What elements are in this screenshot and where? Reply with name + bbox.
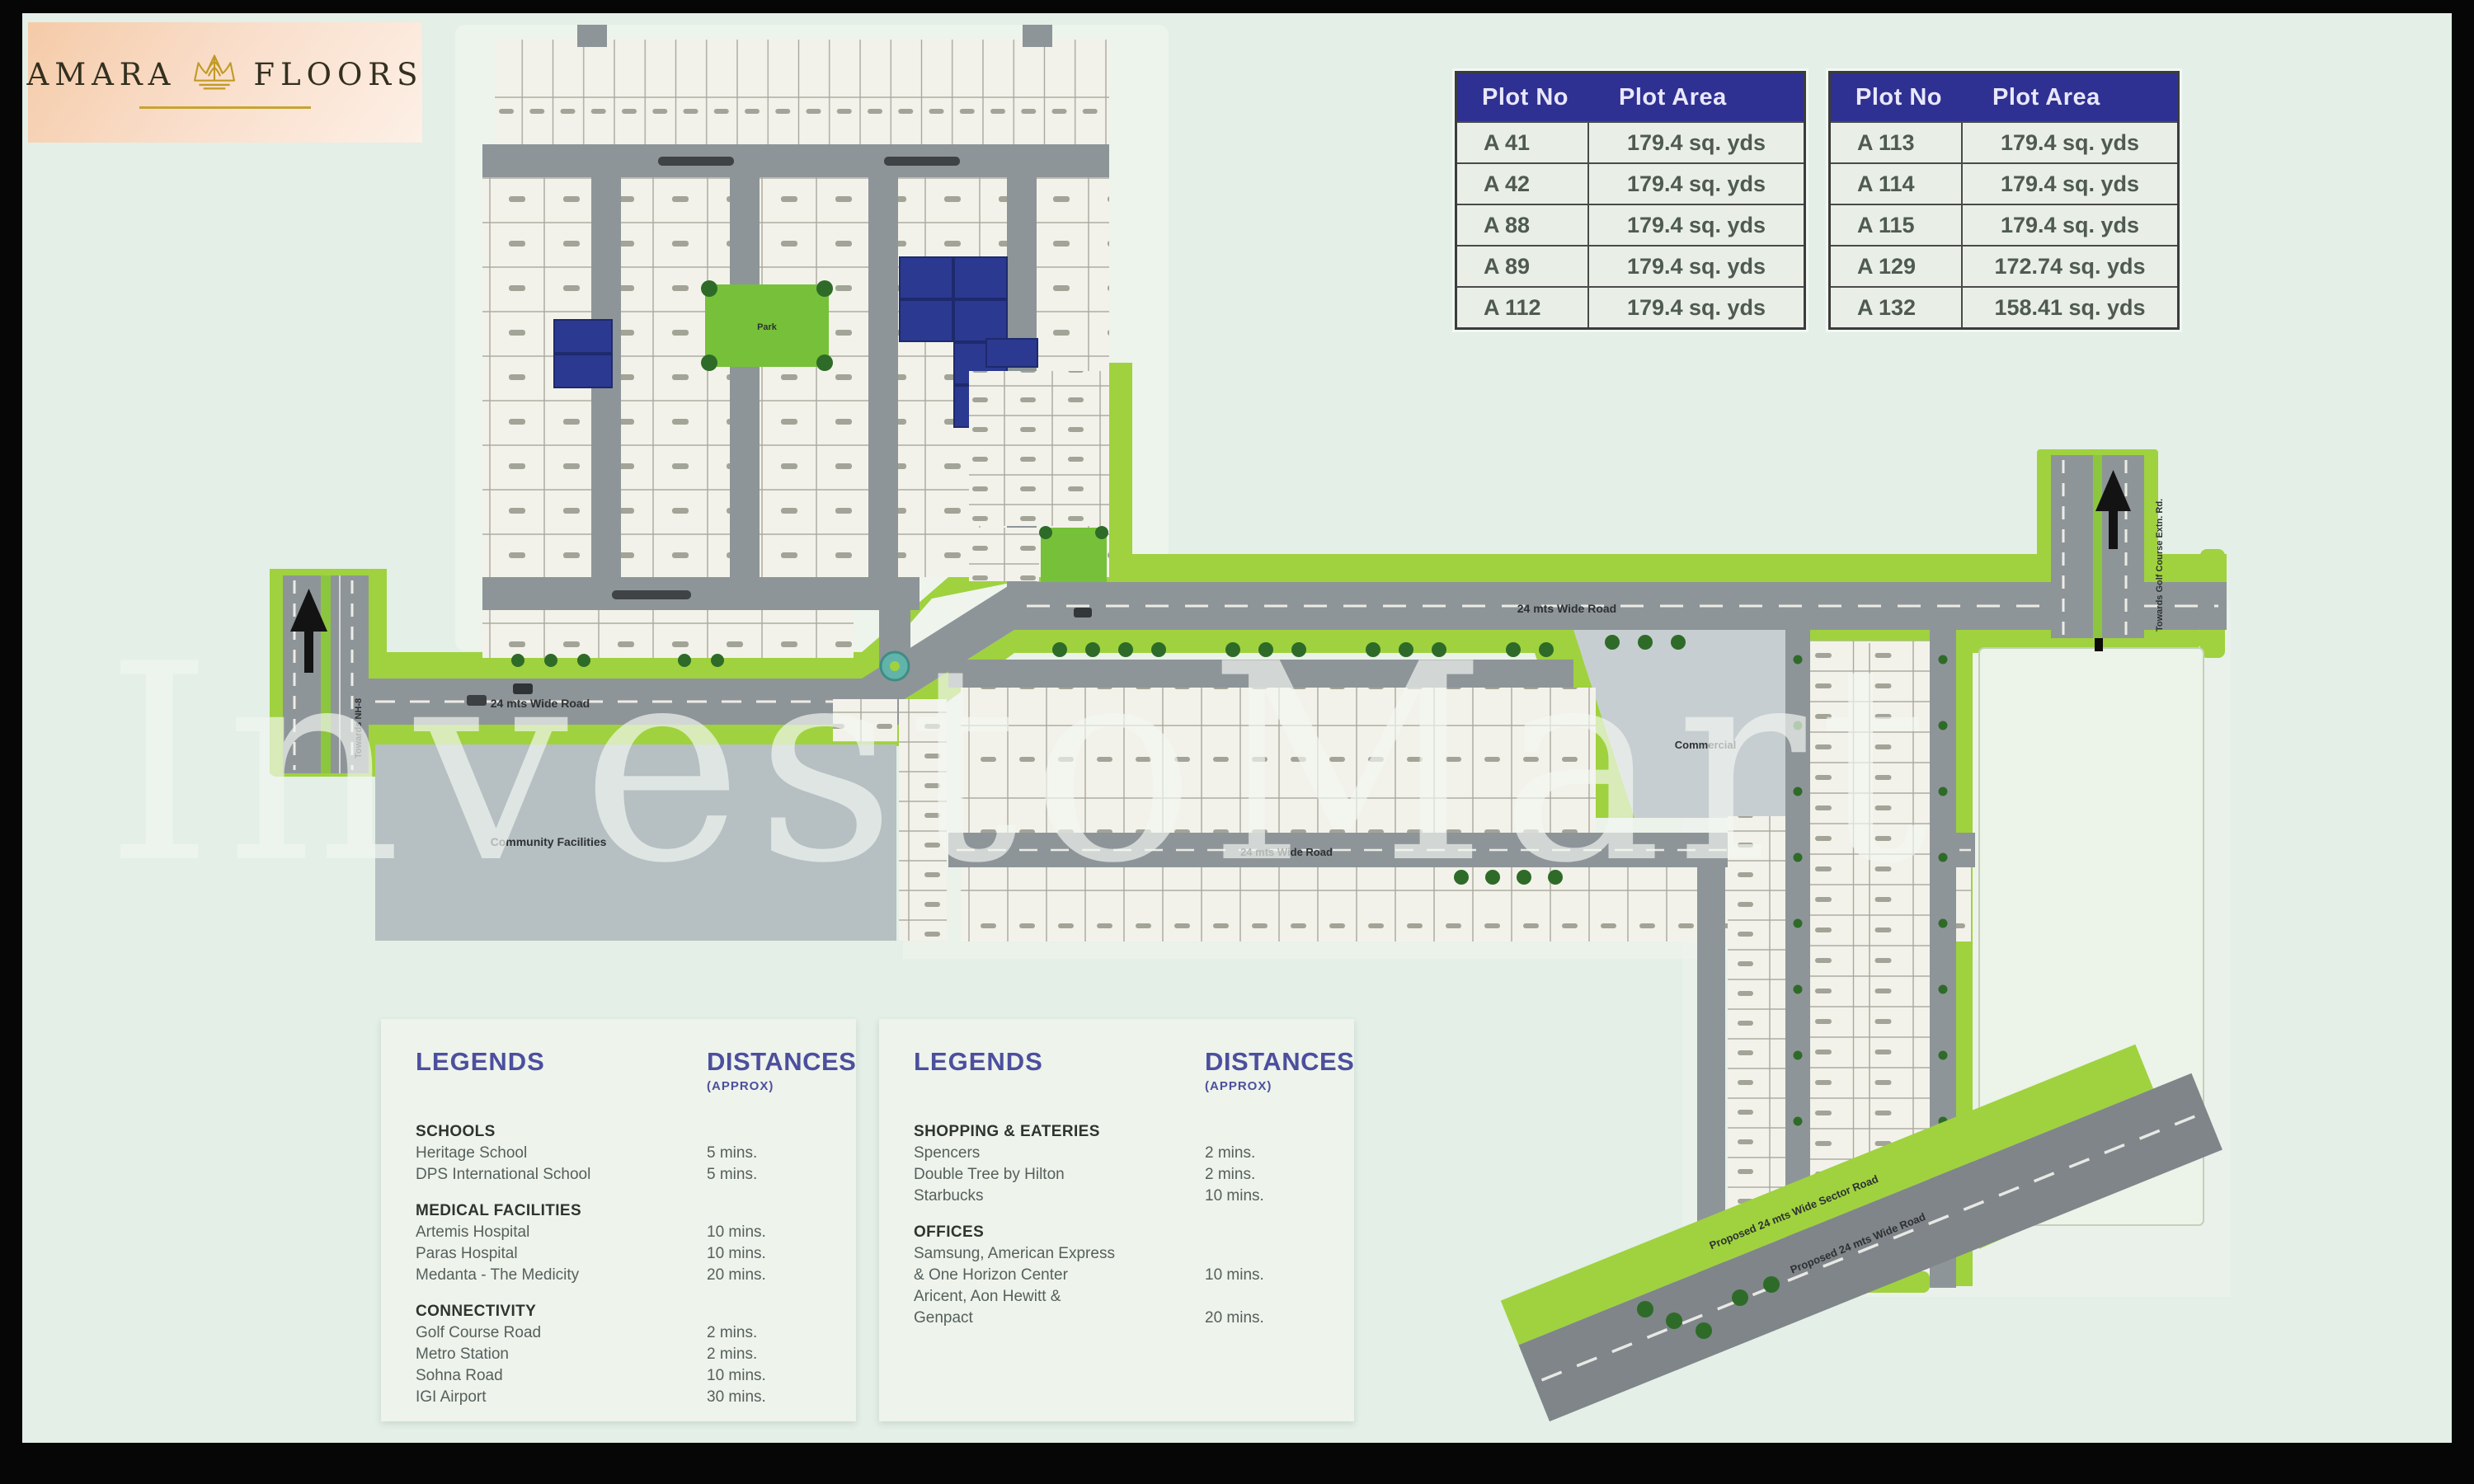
legend-item: Medanta - The Medicity 20 mins.	[416, 1265, 856, 1286]
item-name: Heritage School	[416, 1143, 688, 1164]
legend-item: Artemis Hospital 10 mins.	[416, 1222, 856, 1243]
table-cell: 179.4 sq. yds	[1963, 162, 2177, 204]
item-name: Metro Station	[416, 1344, 688, 1365]
road-internal-label: 24 mts Wide Road	[1240, 846, 1333, 858]
item-distance: 5 mins.	[707, 1164, 757, 1186]
item-name: Golf Course Road	[416, 1322, 688, 1344]
item-distance: 2 mins.	[1205, 1164, 1255, 1186]
item-distance: 10 mins.	[1205, 1186, 1264, 1207]
table-cell: A 88	[1457, 204, 1589, 245]
table-cell: 179.4 sq. yds	[1589, 121, 1804, 162]
item-name: Spencers	[914, 1143, 1186, 1164]
table-cell: 179.4 sq. yds	[1589, 245, 1804, 286]
legend-panel-1: LEGENDS DISTANCES (APPROX) SCHOOLS Herit…	[381, 1019, 856, 1421]
frame-border-bottom	[0, 1443, 2474, 1484]
table-cell: 179.4 sq. yds	[1589, 162, 1804, 204]
table-cell: 179.4 sq. yds	[1963, 121, 2177, 162]
table-cell: A 132	[1831, 286, 1963, 327]
item-name: Double Tree by Hilton	[914, 1164, 1186, 1186]
legend-section-offices: OFFICES Samsung, American Express & One …	[914, 1223, 1354, 1329]
item-distance: 2 mins.	[707, 1322, 757, 1344]
item-distance: 2 mins.	[707, 1344, 757, 1365]
table-cell: A 41	[1457, 121, 1589, 162]
item-name: DPS International School	[416, 1164, 688, 1186]
item-name: Aricent, Aon Hewitt & Genpact	[914, 1286, 1186, 1329]
item-name: IGI Airport	[416, 1387, 688, 1408]
legend-item: Samsung, American Express & One Horizon …	[914, 1243, 1354, 1286]
park-label: Park	[757, 322, 778, 332]
item-distance: 10 mins.	[707, 1222, 766, 1243]
section-title: SHOPPING & EATERIES	[914, 1123, 1354, 1141]
item-name: Samsung, American Express & One Horizon …	[914, 1243, 1186, 1286]
road-west-label: 24 mts Wide Road	[491, 697, 590, 710]
legends-title: LEGENDS	[914, 1047, 1043, 1076]
item-name: Sohna Road	[416, 1365, 688, 1387]
item-distance: 5 mins.	[707, 1143, 757, 1164]
brand-name-left: AMARA	[26, 57, 176, 92]
item-distance: 20 mins.	[1205, 1308, 1264, 1329]
legend-item: DPS International School 5 mins.	[416, 1164, 856, 1186]
item-distance: 30 mins.	[707, 1387, 766, 1408]
logo-underline	[139, 106, 311, 109]
towards-left-label: Towards NH-8	[354, 698, 364, 758]
item-name: Artemis Hospital	[416, 1222, 688, 1243]
legend-section-medical: MEDICAL FACILITIES Artemis Hospital 10 m…	[416, 1202, 856, 1286]
frame-border-right	[2452, 0, 2474, 1484]
community-facilities-area: Community Facilities	[375, 744, 896, 941]
frame-border-left	[0, 0, 22, 1484]
item-distance: 10 mins.	[1205, 1265, 1264, 1286]
section-title: OFFICES	[914, 1223, 1354, 1242]
legend-item: Paras Hospital 10 mins.	[416, 1243, 856, 1265]
legend-item: Metro Station 2 mins.	[416, 1344, 856, 1365]
table-cell: A 129	[1831, 245, 1963, 286]
car-marker	[1074, 608, 1092, 618]
road-main-label: 24 mts Wide Road	[1517, 602, 1616, 615]
legend-item: Aricent, Aon Hewitt & Genpact 20 mins.	[914, 1286, 1354, 1329]
section-title: SCHOOLS	[416, 1123, 856, 1141]
item-name: Starbucks	[914, 1186, 1186, 1207]
commercial-label: Commercial	[1675, 739, 1736, 751]
frame-border-top	[0, 0, 2474, 13]
distances-approx: (APPROX)	[707, 1079, 856, 1093]
item-distance: 10 mins.	[707, 1243, 766, 1265]
legend-item: Golf Course Road 2 mins.	[416, 1322, 856, 1344]
distances-label: DISTANCES	[1205, 1047, 1354, 1076]
legend-panel-2: LEGENDS DISTANCES (APPROX) SHOPPING & EA…	[879, 1019, 1354, 1421]
legend-section-connectivity: CONNECTIVITY Golf Course Road 2 mins. Me…	[416, 1303, 856, 1408]
table-cell: 172.74 sq. yds	[1963, 245, 2177, 286]
crown-icon	[189, 50, 240, 93]
item-distance: 10 mins.	[707, 1365, 766, 1387]
legends-title: LEGENDS	[416, 1047, 545, 1076]
west-entry-road: Towards NH-8	[283, 575, 369, 773]
legend-item: Spencers 2 mins.	[914, 1143, 1354, 1164]
legend-item: Sohna Road 10 mins.	[416, 1365, 856, 1387]
plot-area-header: Plot Area	[1589, 73, 1804, 121]
item-name: Paras Hospital	[416, 1243, 688, 1265]
distances-label: DISTANCES	[707, 1047, 856, 1076]
table-cell: A 42	[1457, 162, 1589, 204]
plot-no-header: Plot No	[1831, 73, 1963, 121]
plot-table-1: Plot No Plot Area A 41 179.4 sq. yds A 4…	[1455, 71, 1806, 330]
item-distance: 20 mins.	[707, 1265, 766, 1286]
table-cell: A 115	[1831, 204, 1963, 245]
west-horizontal-road: 24 mts Wide Road	[367, 679, 899, 725]
towards-right-label: Towards Golf Course Extn. Rd.	[2155, 499, 2165, 632]
section-title: CONNECTIVITY	[416, 1303, 856, 1321]
legend-item: IGI Airport 30 mins.	[416, 1387, 856, 1408]
brand-logo: AMARA FLOORS	[28, 22, 422, 143]
legend-section-shopping: SHOPPING & EATERIES Spencers 2 mins. Dou…	[914, 1123, 1354, 1207]
legend-item: Double Tree by Hilton 2 mins.	[914, 1164, 1354, 1186]
legend-section-schools: SCHOOLS Heritage School 5 mins. DPS Inte…	[416, 1123, 856, 1186]
table-cell: A 112	[1457, 286, 1589, 327]
table-cell: 179.4 sq. yds	[1589, 286, 1804, 327]
table-cell: A 113	[1831, 121, 1963, 162]
legend-item: Heritage School 5 mins.	[416, 1143, 856, 1164]
section-title: MEDICAL FACILITIES	[416, 1202, 856, 1220]
plot-area-header: Plot Area	[1963, 73, 2177, 121]
plot-table-2: Plot No Plot Area A 113 179.4 sq. yds A …	[1828, 71, 2180, 330]
brand-name-right: FLOORS	[253, 57, 423, 92]
item-distance: 2 mins.	[1205, 1143, 1255, 1164]
item-name: Medanta - The Medicity	[416, 1265, 688, 1286]
car-marker	[467, 695, 487, 706]
table-cell: 179.4 sq. yds	[1963, 204, 2177, 245]
table-cell: A 114	[1831, 162, 1963, 204]
distances-title: DISTANCES (APPROX)	[1205, 1047, 1354, 1093]
plot-no-header: Plot No	[1457, 73, 1589, 121]
legend-item: Starbucks 10 mins.	[914, 1186, 1354, 1207]
table-cell: 179.4 sq. yds	[1589, 204, 1804, 245]
table-cell: 158.41 sq. yds	[1963, 286, 2177, 327]
distances-title: DISTANCES (APPROX)	[707, 1047, 856, 1093]
distances-approx: (APPROX)	[1205, 1079, 1354, 1093]
central-park: Park	[701, 280, 833, 371]
car-marker	[513, 683, 533, 694]
table-cell: A 89	[1457, 245, 1589, 286]
community-facilities-label: Community Facilities	[491, 835, 607, 848]
